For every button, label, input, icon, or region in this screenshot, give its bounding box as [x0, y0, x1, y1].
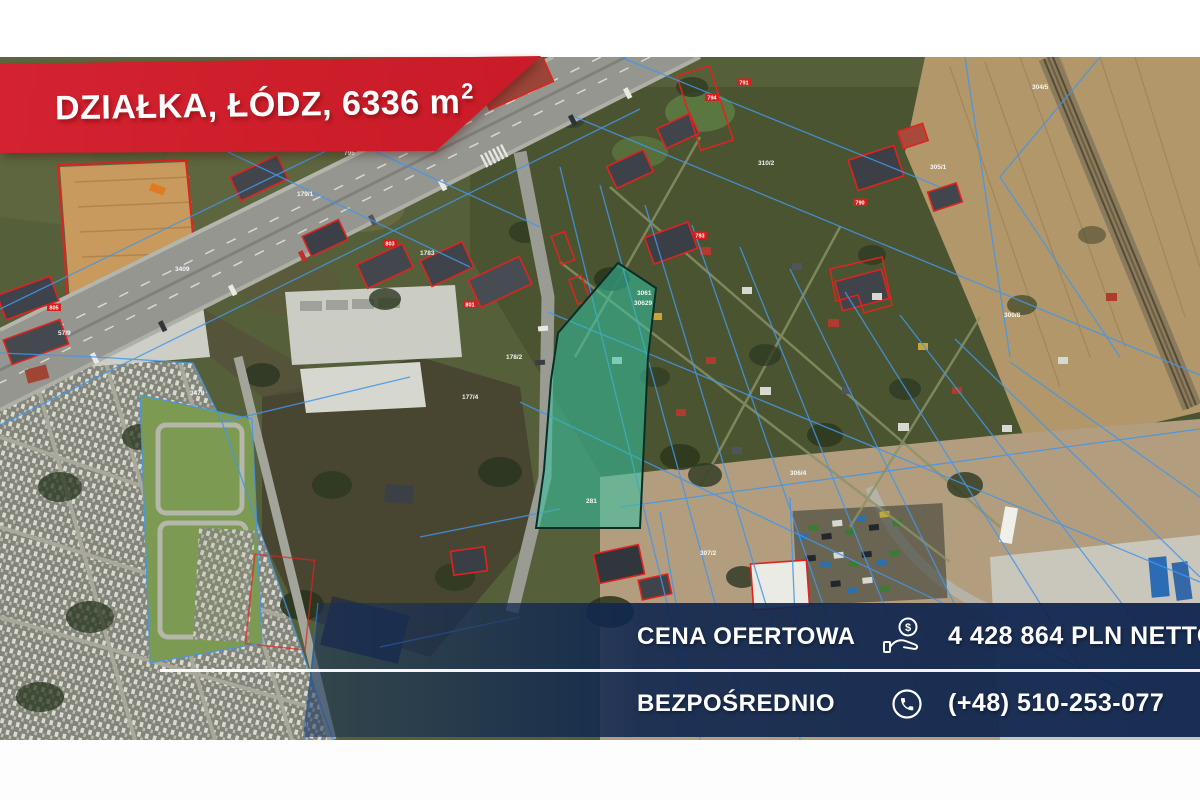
- top-white-band: [0, 0, 1200, 57]
- park-section: [140, 395, 262, 663]
- svg-text:790: 790: [855, 201, 864, 207]
- price-label: CENA OFERTOWA: [637, 603, 856, 670]
- svg-text:305/1: 305/1: [930, 164, 947, 171]
- svg-text:177/4: 177/4: [462, 394, 479, 401]
- svg-text:306/4: 306/4: [790, 470, 807, 477]
- svg-text:794: 794: [707, 96, 717, 102]
- phone-value: (+48) 510-253-077: [948, 670, 1164, 737]
- offer-row-phone: BEZPOŚREDNIO (+48) 510-253-077: [302, 670, 1200, 737]
- svg-text:791: 791: [739, 81, 748, 87]
- svg-text:179/1: 179/1: [297, 191, 314, 198]
- svg-text:803: 803: [385, 242, 394, 248]
- svg-text:793: 793: [695, 234, 704, 240]
- svg-text:300/8: 300/8: [1004, 312, 1021, 319]
- svg-text:304/5: 304/5: [1032, 84, 1049, 91]
- svg-text:$: $: [905, 622, 911, 634]
- title-ribbon: DZIAŁKA, ŁÓDZ, 6336 m2: [0, 54, 552, 158]
- price-value: 4 428 864 PLN NETTO: [948, 603, 1200, 670]
- svg-text:57/9: 57/9: [58, 330, 71, 337]
- svg-text:3061: 3061: [637, 290, 652, 297]
- contact-label: BEZPOŚREDNIO: [637, 670, 835, 737]
- svg-text:1783: 1783: [420, 250, 435, 257]
- svg-text:307/2: 307/2: [700, 550, 717, 557]
- svg-text:281: 281: [586, 498, 597, 505]
- bottom-white-band: [0, 740, 1200, 800]
- coin-hand-icon: $: [880, 616, 926, 658]
- svg-text:805: 805: [49, 306, 58, 312]
- svg-text:3470: 3470: [190, 390, 205, 397]
- phone-icon: [887, 684, 927, 724]
- white-warehouse: [750, 560, 809, 610]
- offer-row-price: CENA OFERTOWA $ 4 428 864 PLN NETTO: [302, 603, 1200, 670]
- svg-text:801: 801: [465, 303, 474, 309]
- svg-text:310/2: 310/2: [758, 160, 775, 167]
- banner-divider-line: [160, 669, 1200, 672]
- poster-title-text: DZIAŁKA, ŁÓDZ, 6336 m: [55, 83, 461, 127]
- svg-text:178/2: 178/2: [506, 354, 523, 361]
- svg-text:30629: 30629: [634, 300, 652, 307]
- svg-text:3409: 3409: [175, 266, 190, 273]
- poster-title: DZIAŁKA, ŁÓDZ, 6336 m2: [55, 80, 474, 128]
- poster-title-exponent: 2: [461, 78, 474, 103]
- property-poster: 3409179/1178357/93470796310/2304/5300/83…: [0, 0, 1200, 800]
